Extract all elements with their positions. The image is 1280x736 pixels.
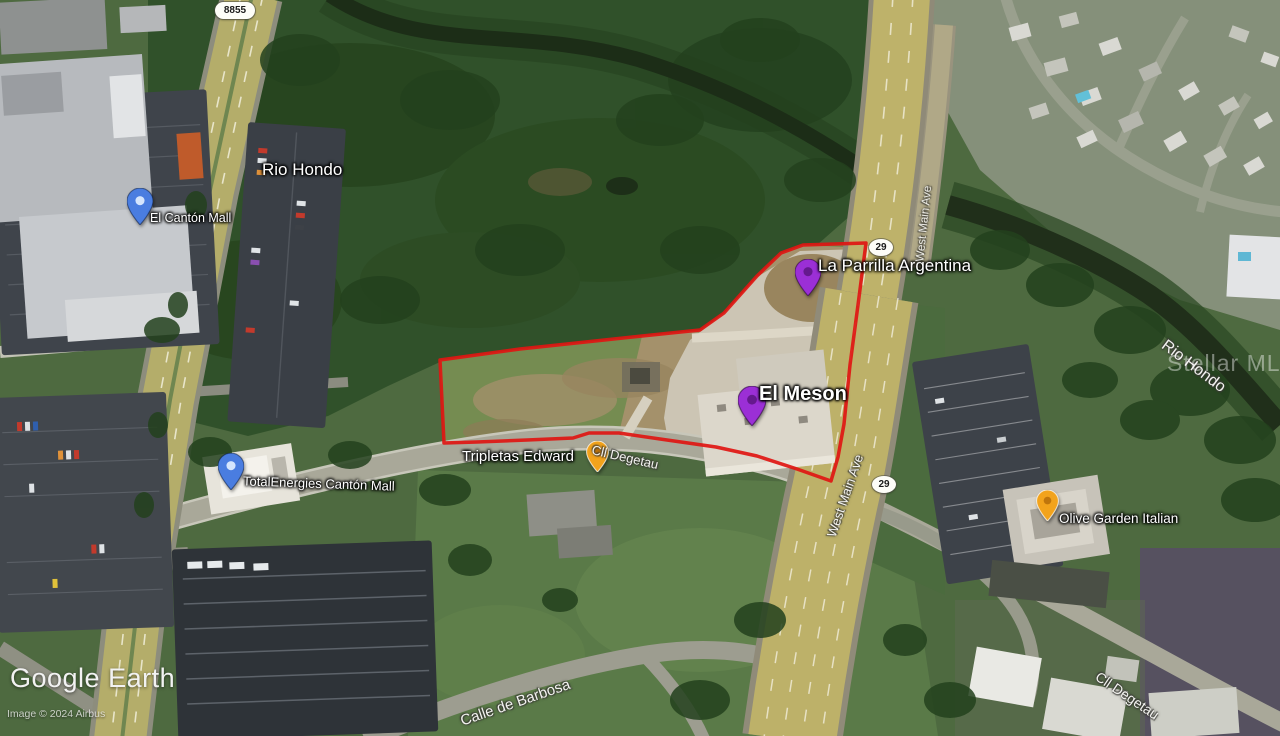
route-shield-29-north: 29 — [869, 239, 893, 256]
label-el-meson: El Meson — [759, 384, 847, 404]
stellar-mls-watermark: Stellar MLS — [1167, 352, 1280, 375]
label-el-canton-mall: El Cantón Mall — [150, 212, 231, 225]
map-pin-totalenergies[interactable] — [218, 453, 244, 490]
orange-roof-building — [176, 132, 203, 180]
label-olive-garden-italian: Olive Garden Italian — [1059, 512, 1178, 526]
label-rio-hondo-district: Rio Hondo — [262, 161, 342, 178]
imagery-copyright: Image © 2024 Airbus — [7, 708, 105, 720]
google-earth-logo: Google Earth — [10, 663, 175, 694]
route-shield-29-south: 29 — [872, 476, 896, 493]
google-earth-map-view[interactable]: 8855 29 29 Rio Hondo El Cantón Mall La P… — [0, 0, 1280, 736]
parking-south-large — [172, 540, 439, 736]
label-la-parrilla-argentina: La Parrilla Argentina — [818, 257, 971, 274]
condo-building-right — [1226, 235, 1280, 300]
satellite-canvas[interactable] — [0, 0, 1280, 736]
label-tripletas-edward: Tripletas Edward — [462, 449, 574, 464]
route-shield-8855: 8855 — [215, 2, 255, 19]
map-pin-olive-garden[interactable] — [1036, 490, 1059, 521]
